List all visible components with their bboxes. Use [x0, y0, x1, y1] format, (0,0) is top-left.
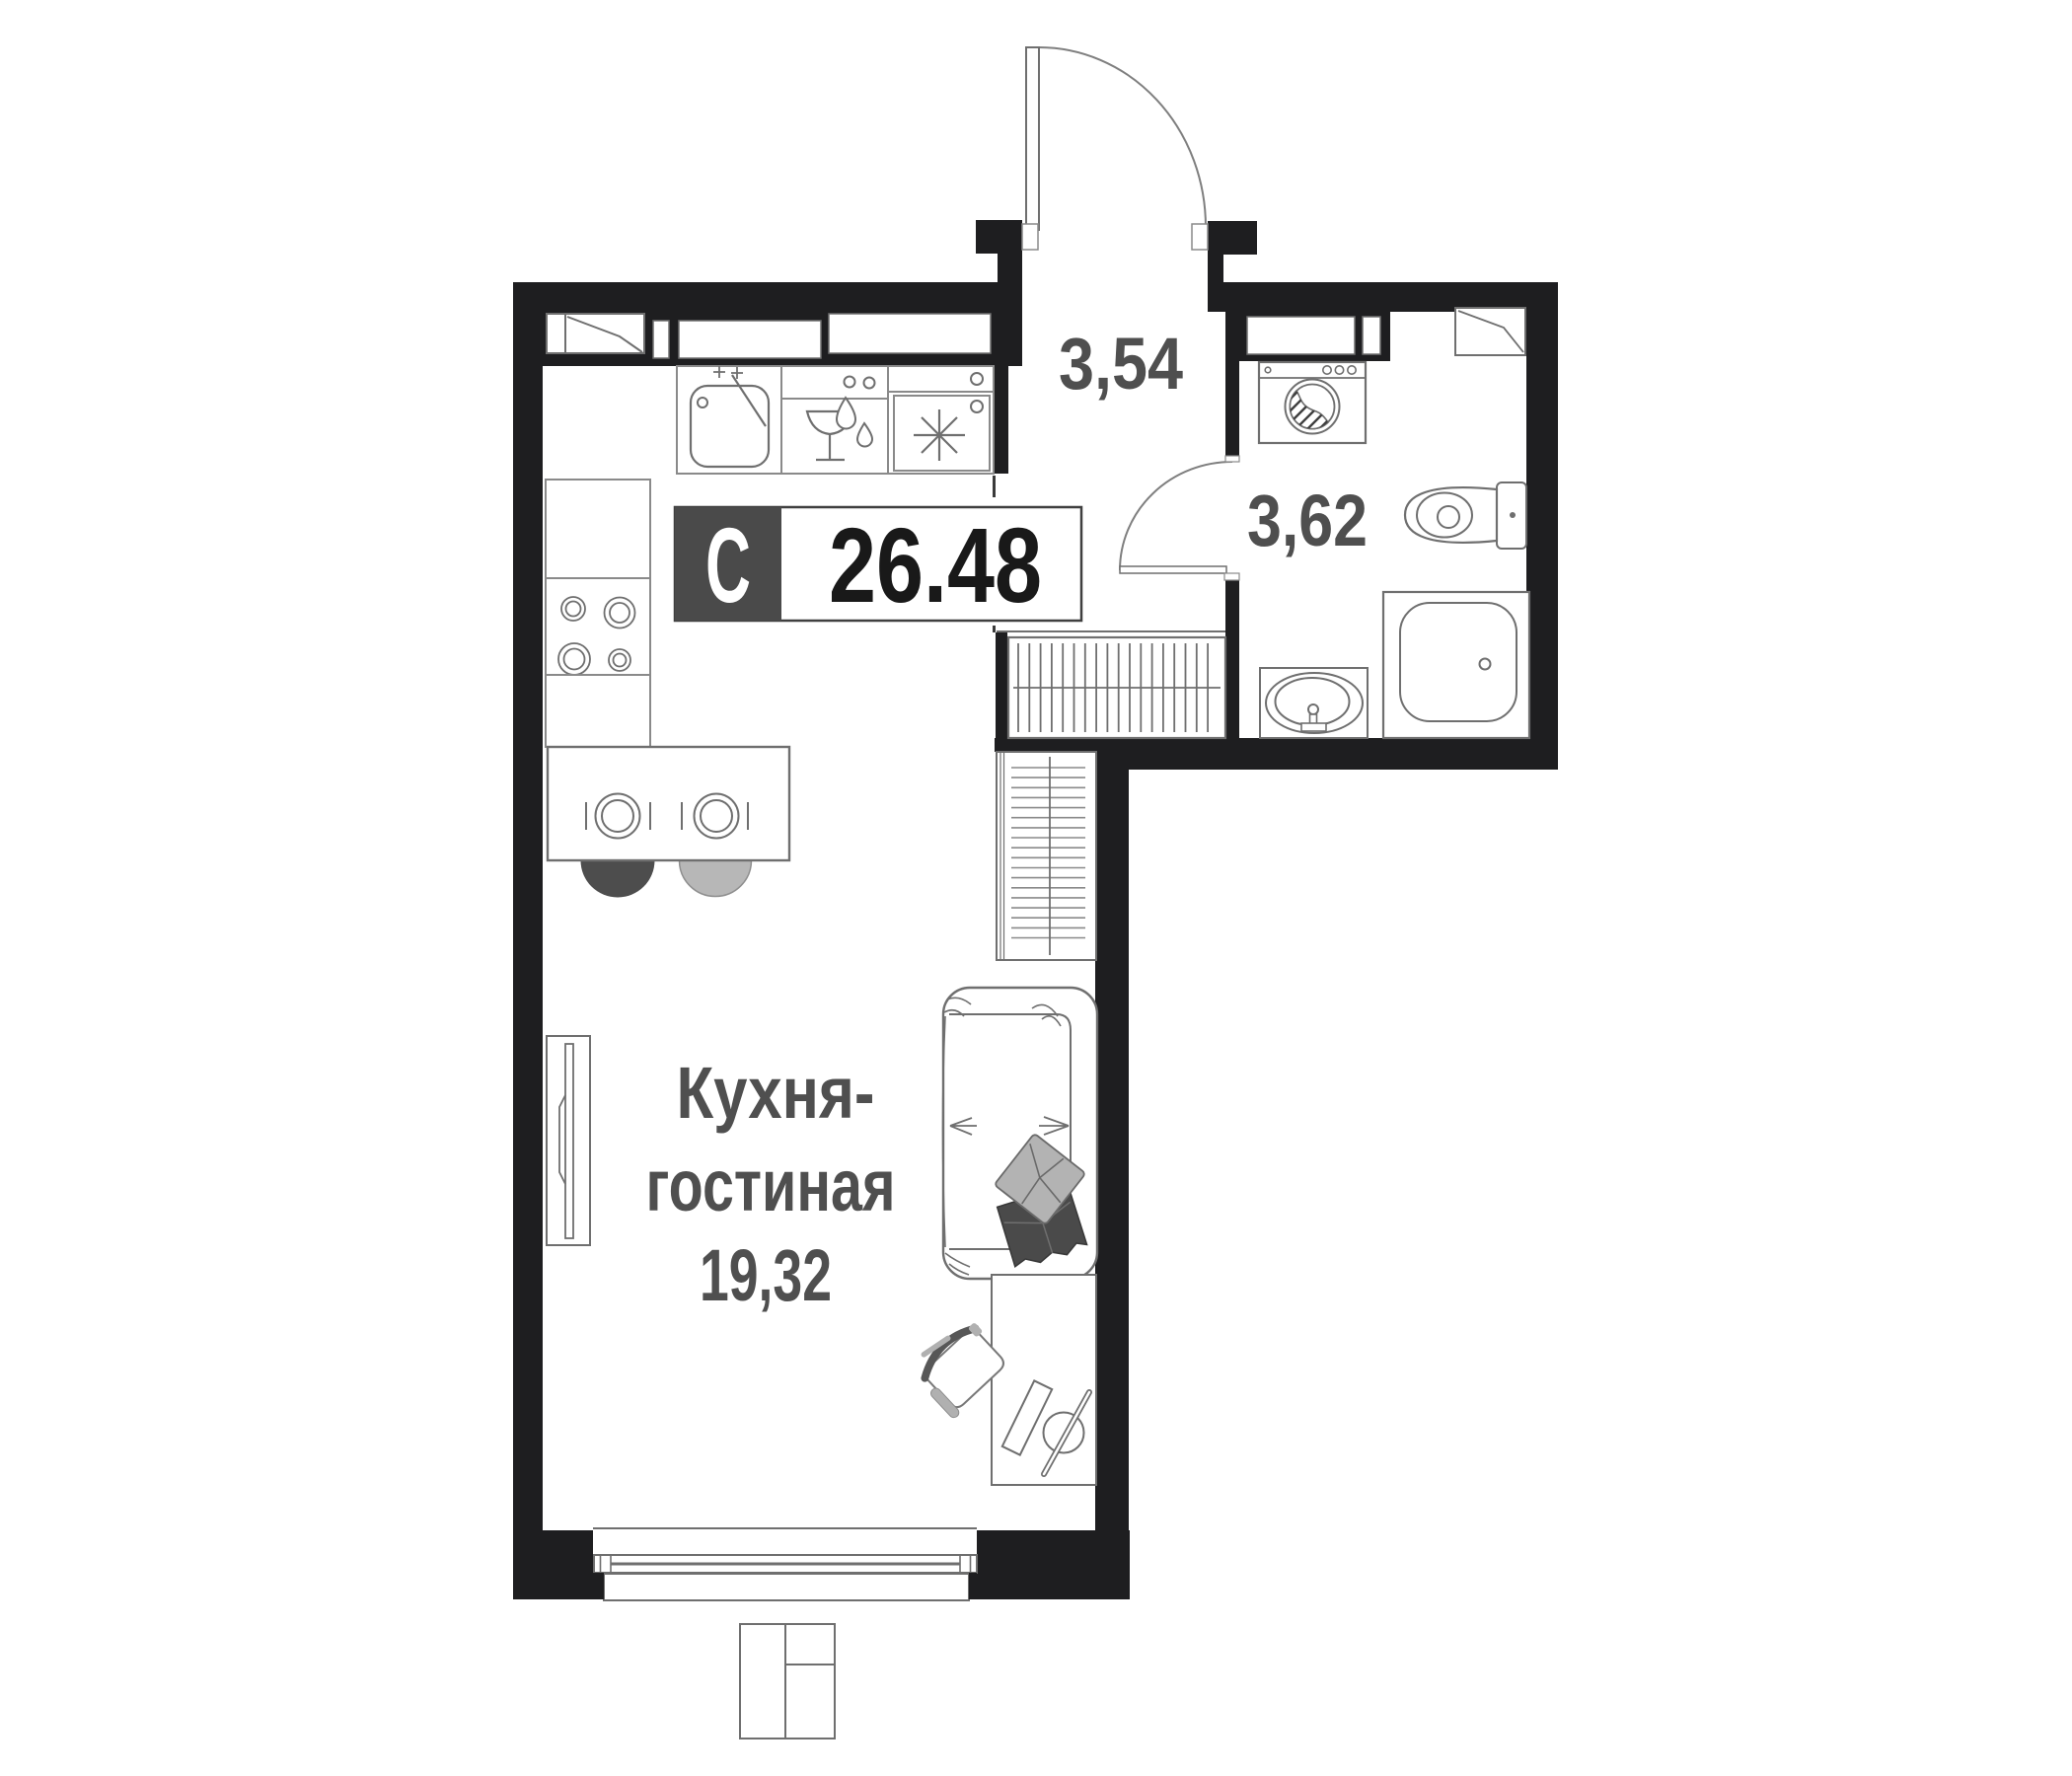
svg-text:19,32: 19,32	[700, 1234, 832, 1316]
svg-text:3,62: 3,62	[1247, 480, 1368, 561]
svg-text:26.48: 26.48	[829, 505, 1042, 625]
svg-text:Кухня-: Кухня-	[677, 1052, 875, 1134]
svg-text:3,54: 3,54	[1059, 323, 1183, 405]
svg-text:С: С	[705, 505, 751, 625]
svg-text:гостиная: гостиная	[646, 1145, 896, 1226]
